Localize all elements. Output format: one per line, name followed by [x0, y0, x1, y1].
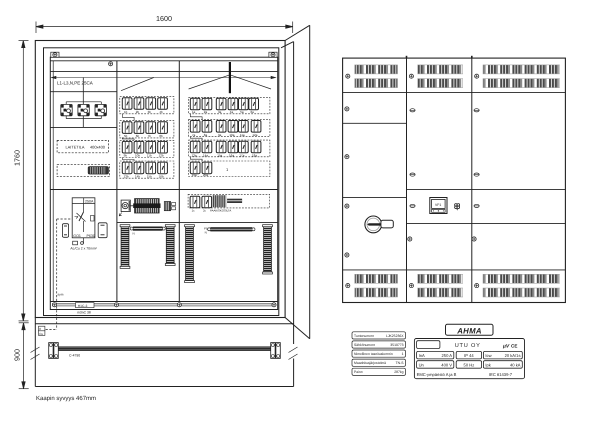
svg-text:17a: 17a	[239, 153, 244, 157]
svg-text:Nimellinen tasoituskerroin: Nimellinen tasoituskerroin	[354, 352, 393, 356]
svg-text:50 Hz: 50 Hz	[464, 362, 475, 367]
svg-text:Icw: Icw	[485, 353, 491, 358]
svg-text:CE: CE	[511, 344, 517, 349]
svg-text:m3nC 38: m3nC 38	[77, 310, 91, 314]
svg-text:LJK25236X: LJK25236X	[386, 334, 404, 338]
svg-text:40 kA: 40 kA	[510, 362, 521, 367]
svg-text:4b: 4b	[159, 110, 163, 114]
svg-text:250A: 250A	[85, 200, 94, 204]
svg-text:N: N	[133, 232, 135, 236]
svg-text:900: 900	[13, 349, 22, 361]
svg-text:C-4790: C-4790	[69, 354, 80, 358]
svg-text:IEC 61439-7: IEC 61439-7	[489, 372, 513, 377]
svg-text:Sähkönumero: Sähkönumero	[354, 343, 375, 347]
svg-text:1600: 1600	[156, 14, 172, 23]
svg-text:1: 1	[226, 167, 229, 172]
svg-text:Paino: Paino	[354, 370, 363, 374]
svg-text:L1-L3,N,PE 25CA: L1-L3,N,PE 25CA	[57, 80, 93, 85]
svg-text:PAAKISKOSILTA: PAAKISKOSILTA	[210, 209, 231, 213]
svg-text:4a: 4a	[230, 110, 234, 114]
svg-text:2b: 2b	[136, 110, 140, 114]
svg-text:12a: 12a	[252, 133, 257, 137]
svg-text:P630: P630	[87, 234, 95, 238]
svg-text:2c: 2c	[203, 209, 207, 213]
svg-text:1: 1	[402, 352, 404, 356]
svg-text:UTU OY: UTU OY	[455, 343, 481, 349]
svg-text:400x400: 400x400	[90, 145, 106, 150]
svg-text:11a: 11a	[240, 133, 245, 137]
svg-text:Tuotenumero: Tuotenumero	[354, 334, 374, 338]
svg-text:16a: 16a	[229, 153, 234, 157]
svg-text:IP 44: IP 44	[464, 353, 474, 358]
svg-text:AL/Cu 2 x 70mm²: AL/Cu 2 x 70mm²	[70, 247, 97, 251]
svg-text:15b: 15b	[147, 174, 152, 178]
svg-text:10b: 10b	[135, 154, 140, 158]
svg-text:3510773: 3510773	[390, 343, 403, 347]
svg-text:5a: 5a	[240, 110, 244, 114]
svg-text:Cu: Cu	[39, 332, 43, 336]
svg-text:7b: 7b	[148, 134, 152, 138]
svg-text:VF1: VF1	[435, 203, 441, 207]
svg-text:14b: 14b	[135, 174, 140, 178]
svg-text:Maadoitusjärjestelmä: Maadoitusjärjestelmä	[354, 361, 386, 365]
svg-text:6a: 6a	[251, 110, 255, 114]
svg-text:EMC-ympäristö A ja B: EMC-ympäristö A ja B	[417, 372, 457, 377]
svg-text:sym: sym	[58, 293, 64, 297]
svg-text:2a: 2a	[204, 110, 208, 114]
svg-text:9b: 9b	[124, 154, 128, 158]
svg-text:18a: 18a	[252, 153, 257, 157]
svg-text:10a: 10a	[229, 133, 234, 137]
svg-text:N: N	[205, 231, 207, 235]
svg-text:Kaapin syvyys 467mm: Kaapin syvyys 467mm	[36, 395, 96, 402]
svg-text:InA: InA	[419, 353, 425, 358]
svg-text:20 kA/1s: 20 kA/1s	[505, 353, 521, 358]
svg-text:LAITETILA: LAITETILA	[66, 145, 85, 150]
svg-text:16b: 16b	[159, 174, 164, 178]
svg-text:Ipk: Ipk	[485, 362, 491, 367]
svg-text:13a: 13a	[192, 153, 197, 157]
svg-text:9a: 9a	[218, 133, 222, 137]
svg-text:6b: 6b	[136, 134, 140, 138]
svg-text:1b: 1b	[124, 110, 128, 114]
svg-text:15a: 15a	[217, 153, 222, 157]
svg-text:19a: 19a	[192, 173, 197, 177]
svg-text:1760: 1760	[13, 150, 22, 166]
svg-text:H1C-3: H1C-3	[78, 304, 88, 308]
svg-text:AHMA: AHMA	[456, 326, 482, 335]
svg-text:11b: 11b	[147, 154, 152, 158]
svg-text:GO1: GO1	[73, 234, 81, 238]
svg-text:TN-S: TN-S	[396, 361, 405, 365]
svg-text:3a: 3a	[218, 110, 222, 114]
svg-text:13b: 13b	[124, 174, 129, 178]
svg-text:287kg: 287kg	[394, 370, 403, 374]
svg-text:1a: 1a	[192, 110, 196, 114]
svg-text:µV: µV	[502, 344, 510, 350]
svg-text:1c: 1c	[192, 209, 196, 213]
svg-text:8b: 8b	[159, 134, 163, 138]
svg-text:5b: 5b	[124, 134, 128, 138]
svg-text:3b: 3b	[148, 110, 152, 114]
svg-text:400 V: 400 V	[441, 362, 452, 367]
svg-text:14a: 14a	[203, 153, 208, 157]
svg-text:250 A: 250 A	[442, 353, 453, 358]
svg-text:12b: 12b	[159, 154, 164, 158]
svg-text:Un: Un	[419, 362, 425, 367]
svg-text:8a: 8a	[204, 133, 208, 137]
svg-text:20a: 20a	[203, 173, 208, 177]
svg-text:7a: 7a	[192, 133, 196, 137]
